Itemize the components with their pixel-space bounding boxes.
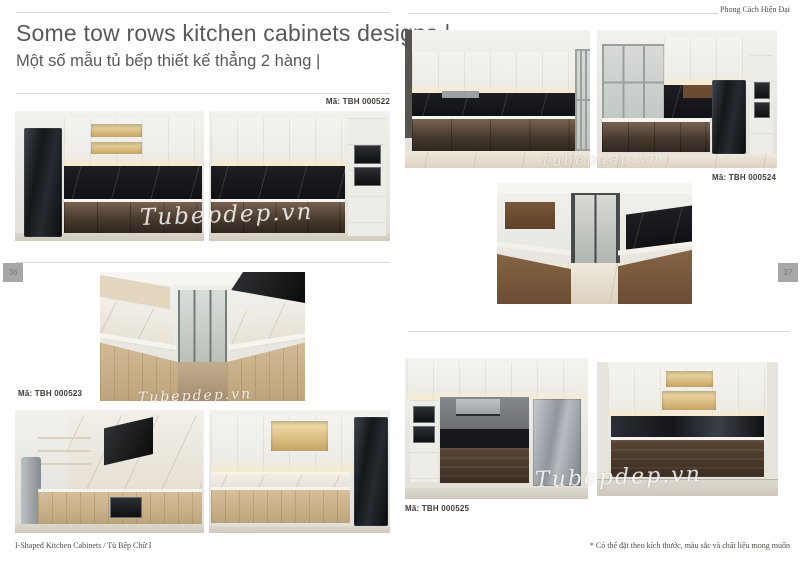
page-number-tab-right: 37 <box>778 263 798 282</box>
upper-cabinets <box>211 118 345 166</box>
tall-upper-cabinets <box>407 362 586 400</box>
kitchen-photo-tbh000523-b <box>15 410 204 533</box>
catalog-spread: Phong Cách Hiện Đại Some tow rows kitche… <box>0 0 800 565</box>
wood-upper-cabinet <box>505 202 556 229</box>
side-wall <box>597 362 608 496</box>
open-shelves <box>38 426 91 469</box>
built-in-oven <box>110 497 142 518</box>
kitchen-photo-tbh000525-a <box>405 358 588 499</box>
sliding-glass-door <box>571 193 620 270</box>
dark-backsplash <box>412 93 575 115</box>
lit-display-niche <box>271 421 329 451</box>
lit-shelf-niche <box>91 124 142 137</box>
header-divider <box>16 93 390 94</box>
refrigerator <box>24 128 62 237</box>
kitchen-photo-tbh000522-a <box>15 111 204 241</box>
kitchen-photo-tbh000524-a <box>405 30 590 168</box>
mid-rule-right <box>408 331 790 332</box>
kitchen-photo-tbh000522-b <box>209 111 390 241</box>
kitchen-photo-tbh000524-b <box>597 30 777 168</box>
upper-cabinets <box>412 52 575 93</box>
footer-category-label: I-Shaped Kitchen Cabinets / Tủ Bếp Chữ I <box>15 541 151 550</box>
base-cabinets <box>440 448 530 483</box>
floor <box>597 479 778 496</box>
photo-code-label: Mã: TBH 000523 <box>18 389 82 398</box>
lit-shelf-niche <box>662 391 716 410</box>
kitchen-photo-tbh000523-c <box>209 410 390 533</box>
built-in-oven <box>354 167 381 187</box>
base-cabinets <box>412 119 575 151</box>
range-hood <box>442 91 479 98</box>
side-wall <box>767 362 778 496</box>
upper-cabinets <box>664 38 745 85</box>
base-cabinets <box>211 202 345 233</box>
built-in-oven <box>754 102 770 119</box>
range-hood <box>456 399 500 416</box>
built-in-oven <box>413 406 435 423</box>
base-cabinets <box>602 122 710 152</box>
page-number-tab-left: 36 <box>3 263 23 282</box>
built-in-oven <box>354 145 381 165</box>
marble-floor <box>597 154 777 168</box>
floor <box>405 488 588 499</box>
refrigerator <box>712 80 746 155</box>
photo-code-label: Mã: TBH 000525 <box>405 504 469 513</box>
kitchen-photo-tbh000524-c <box>497 183 692 304</box>
style-category-label: Phong Cách Hiện Đại <box>720 5 790 14</box>
glass-panel <box>575 49 590 151</box>
lit-shelf-niche <box>91 142 142 154</box>
page-title-en: Some tow rows kitchen cabinets designs | <box>16 20 451 47</box>
dark-backsplash <box>64 166 202 200</box>
mid-rule-left <box>16 262 390 263</box>
floor <box>209 526 390 533</box>
side-wall <box>405 30 412 138</box>
mirror-backsplash <box>611 416 763 437</box>
top-rule-right <box>408 13 718 14</box>
base-cabinets <box>64 202 202 233</box>
refrigerator <box>354 417 388 525</box>
kitchen-photo-tbh000523-a <box>100 272 305 401</box>
footer-note: * Có thể đặt theo kích thước, màu sắc và… <box>590 541 790 550</box>
refrigerator <box>533 399 581 486</box>
built-in-oven <box>413 426 435 443</box>
marble-floor <box>405 151 590 168</box>
floor <box>15 524 204 533</box>
kitchen-photo-tbh000525-b <box>597 362 778 496</box>
photo-code-label: Mã: TBH 000524 <box>712 173 776 182</box>
built-in-oven <box>754 82 770 99</box>
dark-backsplash <box>440 429 530 449</box>
top-rule-left <box>16 12 390 13</box>
lit-shelf-niche <box>666 371 713 387</box>
base-cabinets <box>211 490 350 523</box>
dark-backsplash <box>211 166 345 200</box>
glass-door <box>178 290 227 365</box>
window <box>602 44 663 121</box>
base-cabinets <box>611 440 763 478</box>
page-subtitle-vi: Một số mẫu tủ bếp thiết kế thẳng 2 hàng … <box>16 52 320 71</box>
photo-code-label: Mã: TBH 000522 <box>326 97 390 106</box>
